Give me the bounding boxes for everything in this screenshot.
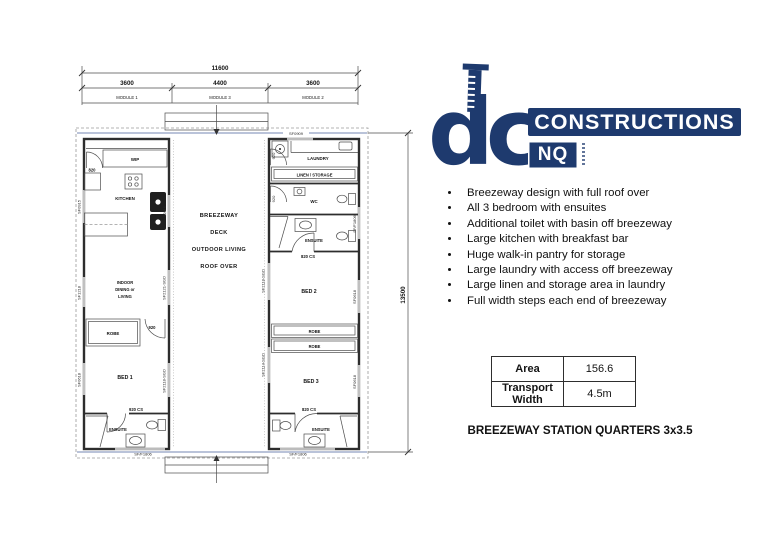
window-label-m1-right-1: SF0915 [162,205,167,220]
room-label-wc: WC [310,199,318,204]
door-label-ensuite-bot: 820 CS [302,407,316,412]
dim-module2: 3600 [306,80,320,87]
window-label-m1-left-3: SF0618 [77,372,82,387]
door-label-laundry: 920 [271,152,276,159]
dim-total-width: 11600 [212,65,229,72]
toilet-ensuite-bot [280,422,291,430]
door-label-ensuite-top: 820 CS [301,254,315,259]
logo-constructions-bar: CONSTRUCTIONS [528,108,741,136]
room-label-ensuite1: ENSUITE [109,427,127,432]
wc-basin [294,188,305,196]
feature-item: Large laundry with access off breezeway [461,263,766,278]
logo-fine-print [582,143,585,167]
spec-table: Area 156.6 Transport Width 4.5m [491,356,636,407]
room-label-wip: WIP [131,157,139,162]
room-label-laundry: LAUNDRY [307,156,328,161]
toilet-ensuite-top [337,232,348,240]
window-label-m2-right-3: SF0618 [352,374,357,389]
room-label-robe1-m2: ROBE [309,329,321,334]
basin-ensuite-top [295,219,316,232]
room-label-living-3: LIVING [118,294,132,299]
steps-top [165,105,268,135]
room-label-bed3: BED 3 [303,379,318,385]
spec-value-transport-width: 4.5m [564,382,636,407]
feature-item: All 3 bedroom with ensuites [461,201,766,216]
window-label-m2-right-1: SF/F1806 [352,214,357,232]
door-label-m1-right-3: SF2118-SGD [162,369,167,393]
cooktop [125,174,142,189]
dim-height: 13500 [400,286,407,304]
window-label-m2-right-2: SF0618 [352,289,357,304]
room-label-living-2: DINING or [115,287,135,292]
feature-item: Full width steps each end of breezeway [461,294,766,309]
window-label-m1-bottom: SF/F1806 [134,452,152,457]
ruler-icon [461,64,489,113]
floor-plan: 11600 3600 4400 3600 MODULE 1 MODULE 3 M… [55,55,420,485]
spec-value-area: 156.6 [564,357,636,382]
side-dimension: 13500 [368,130,413,455]
door-label-ensuite1: 920 CS [129,407,143,412]
company-logo: dc CONSTRUCTIONS NQ [428,62,750,177]
dim-module1: 3600 [120,80,134,87]
door-label-m2-left-1: SF2118-SGD [261,269,266,293]
window-label-m1-left-1: SF0915 [77,199,82,214]
page-title: BREEZEWAY STATION QUARTERS 3x3.5 [445,424,715,437]
feature-list: Breezeway design with full roof over All… [437,186,766,309]
table-row: Transport Width 4.5m [492,382,636,407]
room-label-robe-m1: ROBE [107,331,120,336]
module2-label: MODULE 2 [302,95,324,100]
feature-item: Breezeway design with full roof over [461,186,766,201]
window-label-m2-bottom: SF/F1806 [289,452,307,457]
spec-label-transport-width: Transport Width [492,382,564,407]
window-label-m1-left-2: SF1218 [77,285,82,300]
wc-toilet [337,195,347,203]
brochure-page: 11600 3600 4400 3600 MODULE 1 MODULE 3 M… [0,0,768,543]
room-label-living-1: INDOOR [117,280,133,285]
breezeway-label-1: BREEZEWAY [200,213,239,219]
breezeway-label-3: OUTDOOR LIVING [192,247,246,253]
feature-item: Large kitchen with breakfast bar [461,232,766,247]
room-label-ensuite-bot: ENSUITE [312,427,330,432]
door-label-wip: 820 [89,168,97,173]
window-label-m2-top: SF0909 [289,131,304,136]
spec-label-area: Area [492,357,564,382]
room-label-bed1: BED 1 [117,375,132,381]
room-label-ensuite-top: ENSUITE [305,238,323,243]
top-dimensions: 11600 3600 4400 3600 MODULE 1 MODULE 3 M… [79,65,361,105]
dim-module3: 4400 [213,80,227,87]
basin-ensuite-bot [304,434,325,447]
feature-item: Huge walk-in pantry for storage [461,248,766,263]
door-label-bed1: 920 [149,325,157,330]
feature-item: Large linen and storage area in laundry [461,278,766,293]
door-label-wc: 920 [271,195,276,202]
module3-label: MODULE 3 [209,95,231,100]
room-label-kitchen: KITCHEN [115,196,135,201]
module1-label: MODULE 1 [116,95,138,100]
feature-item: Additional toilet with basin off breezew… [461,217,766,232]
door-label-m2-left-2: SF2114-SGD [261,353,266,377]
room-label-bed2: BED 2 [301,289,316,295]
room-label-linen: LINEN / STORAGE [297,173,333,178]
breezeway-label-4: ROOF OVER [200,264,237,270]
steps-bottom [165,455,268,483]
logo-nq-badge: NQ [528,141,578,169]
door-label-m1-right-2: SF2121-SGD [162,276,167,300]
breezeway-label-2: DECK [210,230,227,236]
basin-m1 [126,434,145,447]
table-row: Area 156.6 [492,357,636,382]
room-label-robe2-m2: ROBE [309,344,321,349]
toilet-m1 [147,421,158,429]
